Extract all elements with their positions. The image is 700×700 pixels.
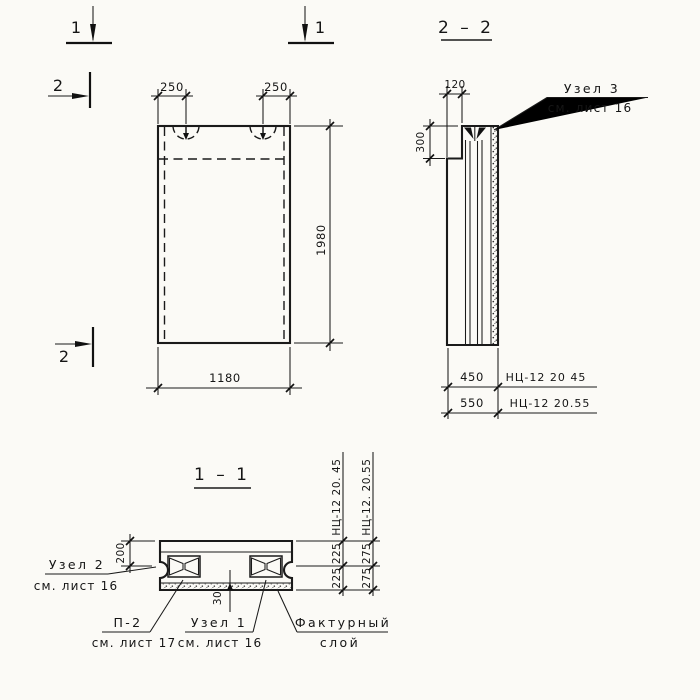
void-left	[168, 556, 200, 577]
section-mark-2-bottom: 2	[55, 327, 93, 367]
bowtie-left-half	[170, 558, 184, 575]
callout-node-3: Узел 3 см. лист 16	[494, 81, 648, 130]
callout-text: Фактурный	[295, 615, 391, 630]
dim-text: 1980	[314, 224, 328, 256]
dim-text: 1180	[209, 371, 241, 385]
cut-label: 1	[71, 18, 81, 37]
dim-text: 225	[331, 543, 343, 564]
callout-text: Узел 2	[49, 557, 105, 572]
leader-line	[108, 567, 156, 574]
dim-text: 225	[331, 567, 343, 588]
dim-1180: 1180	[146, 347, 302, 395]
dim-200: 200	[115, 534, 155, 573]
section-mark-1-left: 1	[66, 6, 112, 43]
section-1-1: 1 – 1 200 30	[34, 452, 391, 650]
cut-arrow-right-icon	[72, 93, 89, 99]
callout-subtext: слой	[320, 635, 360, 650]
bowtie-right-half	[185, 558, 199, 575]
cut-label: 2	[59, 347, 69, 366]
panel-section-outline	[447, 126, 498, 345]
dim-30: 30	[212, 570, 233, 612]
dim-550-row: 550 НЦ-12 20.55	[441, 396, 597, 417]
drawing-sheet: 1 1 2 2	[0, 0, 700, 700]
cut-label: 1	[315, 18, 325, 37]
dim-text: 275	[361, 543, 373, 564]
bowtie-left-half	[252, 558, 266, 575]
dim-text: 120	[444, 79, 465, 91]
section-mark-1-right: 1	[288, 6, 334, 43]
cut-arrow-down-icon	[90, 24, 96, 42]
product-code: НЦ-12 20.55	[510, 397, 591, 410]
dim-text: 275	[361, 567, 373, 588]
dim-1980: 1980	[294, 119, 343, 351]
panel-drawing: 1 1 2 2	[0, 0, 700, 700]
cut-arrow-right-icon	[75, 341, 92, 347]
section-2-2: 2 – 2 120 300	[415, 18, 648, 419]
dim-text: 30	[212, 591, 224, 605]
product-code: НЦ-12 20. 45	[331, 458, 343, 535]
callout-subtext: см. лист 17	[92, 636, 177, 650]
section-mark-2-top: 2	[48, 72, 90, 108]
callout-subtext: см. лист 16	[34, 579, 119, 593]
dim-250-left: 250	[151, 80, 193, 124]
groove-hatch-left	[464, 128, 474, 140]
dim-text: 300	[415, 131, 427, 152]
cut-arrow-down-icon	[302, 24, 308, 42]
dim-text: 250	[264, 80, 288, 94]
cut-label: 2	[53, 76, 63, 95]
groove-hatch-right	[477, 128, 487, 140]
product-code: НЦ-12 20 45	[506, 371, 587, 384]
dim-text: 250	[160, 80, 184, 94]
callout-text: Узел 3	[564, 81, 620, 96]
callout-node-2: Узел 2 см. лист 16	[34, 557, 156, 593]
callout-subtext: см. лист 16	[178, 636, 263, 650]
dim-columns-right: НЦ-12 20. 45 НЦ-12. 20.55 225 225 275 27…	[296, 452, 380, 596]
void-right	[250, 556, 282, 577]
callout-text: Узел 1	[191, 615, 247, 630]
dim-text: 550	[460, 396, 484, 410]
callout-subtext: см. лист 16	[548, 101, 633, 115]
dim-text: 200	[115, 542, 127, 563]
front-view: 250 250 1980 1180	[146, 80, 343, 395]
dim-text: 450	[460, 370, 484, 384]
callout-facing-layer: Фактурный слой	[278, 591, 391, 650]
bowtie-right-half	[267, 558, 281, 575]
callout-text: П-2	[113, 615, 142, 630]
facing-layer-stipple	[492, 127, 498, 344]
dim-250-right: 250	[256, 80, 297, 124]
product-code: НЦ-12. 20.55	[361, 458, 373, 535]
section-title: 1 – 1	[194, 465, 250, 485]
section-title: 2 – 2	[438, 18, 494, 38]
